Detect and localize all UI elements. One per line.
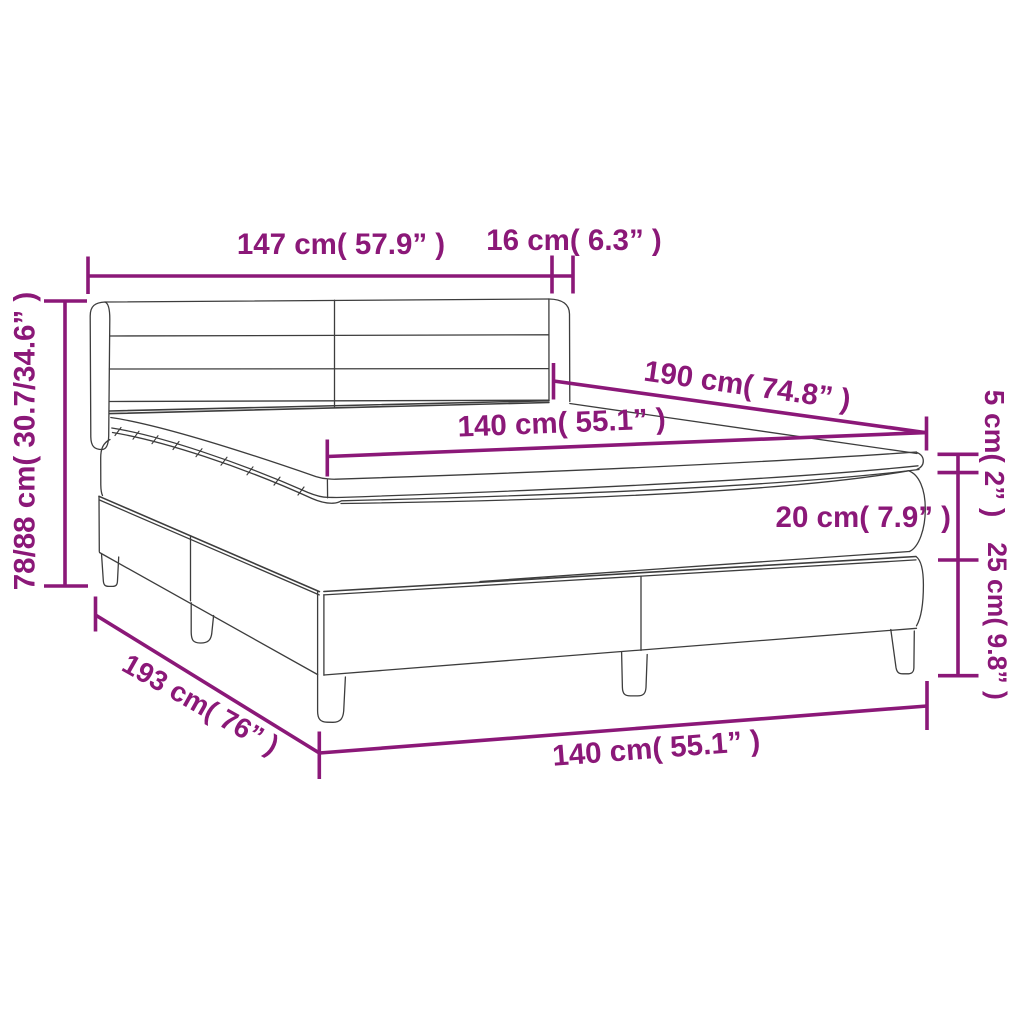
svg-text:5 cm( 2” ): 5 cm( 2” ) [979, 390, 1010, 518]
svg-text:25 cm( 9.8” ): 25 cm( 9.8” ) [982, 542, 1012, 700]
svg-text:16 cm( 6.3” ): 16 cm( 6.3” ) [486, 224, 661, 257]
svg-text:147 cm( 57.9” ): 147 cm( 57.9” ) [237, 228, 445, 261]
svg-text:20 cm( 7.9” ): 20 cm( 7.9” ) [776, 501, 951, 534]
svg-text:78/88 cm( 30.7/34.6” ): 78/88 cm( 30.7/34.6” ) [9, 292, 42, 590]
